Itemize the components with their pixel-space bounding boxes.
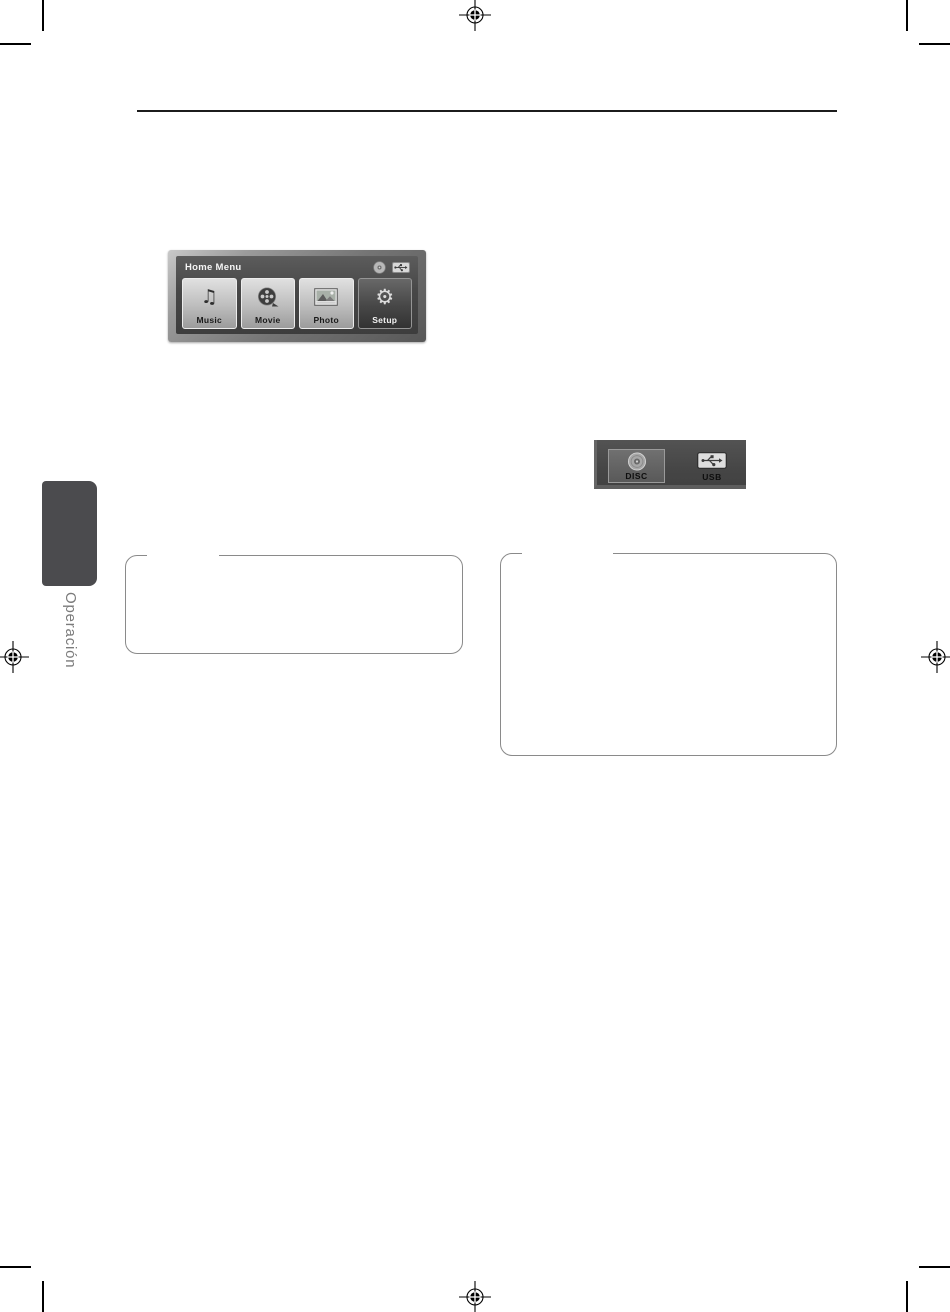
tile-label: Music [196,315,222,325]
home-menu-tile-movie: Movie [241,278,296,329]
photo-icon [314,279,338,315]
home-menu-tile-music: ♫ Music [182,278,237,329]
usb-icon [697,452,727,469]
registration-mark-icon [459,0,491,31]
crop-mark [919,1266,950,1268]
tile-label: Setup [372,315,397,325]
home-menu-title: Home Menu [182,262,242,273]
film-reel-icon [256,279,280,315]
home-menu-tile-photo: Photo [299,278,354,329]
note-box-right [500,553,837,756]
home-menu-status-icons [373,261,412,274]
gear-icon: ⚙ [375,279,394,315]
music-note-icon: ♫ [201,279,218,315]
disc-icon [627,452,647,471]
disc-label: DISC [625,471,647,481]
section-tab-label: Operación [62,592,79,668]
registration-mark-icon [921,641,950,673]
note-box-title-gap [522,551,613,557]
tile-label: Photo [313,315,339,325]
home-menu-header: Home Menu [182,259,412,276]
crop-mark [0,43,31,45]
manual-page: Home Menu [0,0,950,1312]
tile-label: Movie [255,315,281,325]
usb-icon [392,262,410,273]
home-menu-tiles: ♫ Music [182,278,412,329]
registration-mark-icon [0,641,29,673]
note-box-title-gap [147,553,219,559]
section-tab [42,481,97,586]
home-menu-screen: Home Menu [176,256,418,334]
usb-label: USB [702,472,721,482]
header-rule [137,110,837,112]
disc-usb-screenshot: DISC USB [594,440,746,489]
note-box-left [125,555,463,654]
crop-mark [919,43,950,45]
home-menu-tile-setup: ⚙ Setup [358,278,413,329]
home-menu-screenshot: Home Menu [168,250,426,342]
disc-icon [373,261,386,274]
crop-mark [42,1281,44,1312]
crop-mark [906,0,908,31]
crop-mark [906,1281,908,1312]
registration-mark-icon [459,1281,491,1312]
disc-item: DISC [608,449,665,483]
crop-mark [42,0,44,31]
usb-item: USB [693,452,731,482]
crop-mark [0,1266,31,1268]
